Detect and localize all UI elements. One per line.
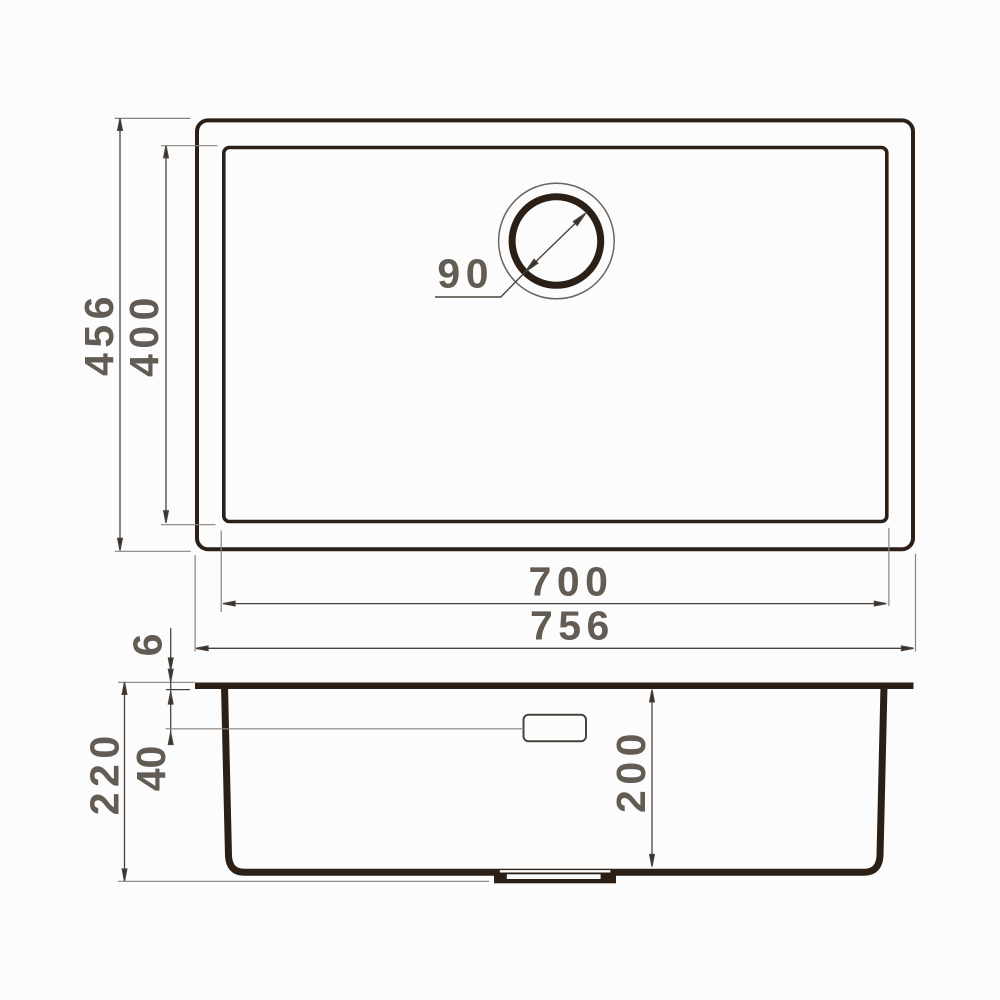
svg-text:90: 90 <box>437 251 494 297</box>
svg-text:40: 40 <box>128 746 174 792</box>
svg-text:700: 700 <box>529 559 614 605</box>
svg-text:756: 756 <box>530 603 615 649</box>
svg-text:456: 456 <box>76 291 122 376</box>
svg-text:400: 400 <box>121 292 167 377</box>
svg-text:220: 220 <box>82 730 128 815</box>
svg-text:6: 6 <box>125 634 171 657</box>
svg-text:200: 200 <box>608 728 654 813</box>
